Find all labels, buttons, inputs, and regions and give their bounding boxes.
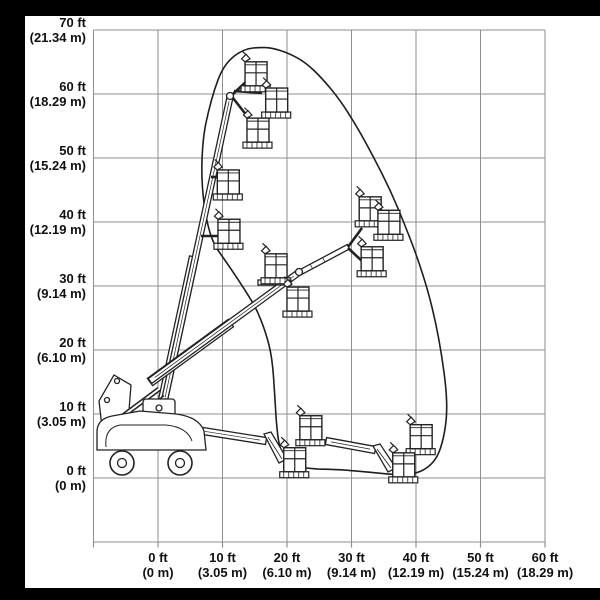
tick-text: 60 ft — [0, 79, 86, 94]
tick-text: 70 ft — [0, 15, 86, 30]
main-boom-mid-fly — [148, 270, 300, 383]
y-axis-tick-label: 60 ft(18.29 m) — [0, 79, 86, 109]
tick-text: 60 ft — [503, 550, 587, 565]
range-of-motion-diagram: 70 ft(21.34 m)60 ft(18.29 m)50 ft(15.24 … — [0, 0, 600, 600]
tick-text: (21.34 m) — [0, 30, 86, 45]
bottom-letterbox-bar — [0, 588, 600, 600]
riser-pin-3 — [115, 379, 120, 384]
grid-lines — [94, 30, 546, 542]
y-axis-tick-label: 40 ft(12.19 m) — [0, 207, 86, 237]
riser-pin-2 — [105, 398, 110, 403]
tick-text: (6.10 m) — [0, 350, 86, 365]
y-axis-tick-label: 30 ft(9.14 m) — [0, 271, 86, 301]
tick-text: (0 m) — [0, 478, 86, 493]
platform-positions — [213, 51, 435, 483]
platform-basket — [213, 159, 242, 200]
y-axis-tick-label: 50 ft(15.24 m) — [0, 143, 86, 173]
tick-text: 20 ft — [0, 335, 86, 350]
boom-stowed-2 — [325, 438, 375, 454]
boom-pin-top — [227, 93, 234, 100]
tick-text: 50 ft — [0, 143, 86, 158]
boom-pin-mid — [296, 269, 303, 276]
tick-text: (18.29 m) — [0, 94, 86, 109]
tick-text: 30 ft — [0, 271, 86, 286]
tick-text: 0 ft — [0, 463, 86, 478]
chassis-body — [97, 411, 206, 450]
platform-basket — [283, 277, 312, 318]
tick-text: 40 ft — [0, 207, 86, 222]
tick-text: (18.29 m) — [503, 565, 587, 580]
y-axis-tick-label: 10 ft(3.05 m) — [0, 399, 86, 429]
y-axis-tick-label: 20 ft(6.10 m) — [0, 335, 86, 365]
tick-text: (15.24 m) — [0, 158, 86, 173]
platform-basket — [357, 236, 386, 277]
x-axis-tick-marks — [94, 542, 546, 548]
tick-text: (9.14 m) — [0, 286, 86, 301]
jib-link-right-down — [348, 248, 362, 261]
wheel-front-hub — [176, 459, 185, 468]
tick-text: 10 ft — [0, 399, 86, 414]
turret-pin — [156, 405, 162, 411]
wheel-rear-hub — [118, 459, 127, 468]
tick-text: (12.19 m) — [0, 222, 86, 237]
y-axis-tick-label: 70 ft(21.34 m) — [0, 15, 86, 45]
reach-envelope-chart — [0, 0, 600, 600]
tick-text: (3.05 m) — [0, 414, 86, 429]
platform-basket — [262, 78, 291, 119]
jib-arm-extended — [298, 245, 350, 276]
platform-basket — [406, 414, 435, 455]
y-axis-tick-label: 0 ft(0 m) — [0, 463, 86, 493]
platform-basket — [214, 209, 243, 250]
platform-basket — [296, 405, 325, 446]
x-axis-tick-label: 60 ft(18.29 m) — [503, 550, 587, 580]
platform-basket — [374, 200, 403, 241]
